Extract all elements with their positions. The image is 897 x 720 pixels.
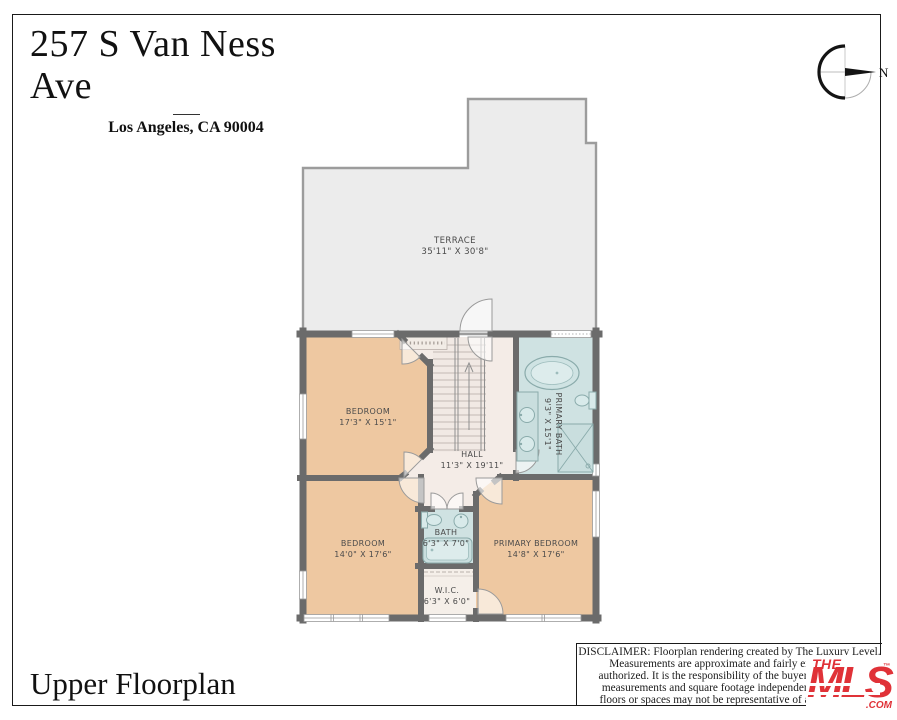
terrace-dims: 35'11" X 30'8" — [421, 247, 488, 257]
terrace-label: TERRACE — [433, 236, 476, 246]
toilet-icon — [575, 395, 589, 406]
themls-logo-com: .COM — [866, 700, 892, 711]
window-bottom-bedroom2 — [304, 615, 389, 622]
bathtub-drain — [556, 372, 559, 375]
logo-stripe — [808, 683, 880, 686]
compass-south-east-arc — [845, 72, 871, 98]
compass-north-label: N — [879, 65, 889, 80]
window-right-primary-bedroom — [593, 491, 600, 537]
themls-logo: THE MLS ™ .COM — [806, 655, 892, 711]
bedroom1-dims: 17'3" X 15'1" — [339, 418, 396, 427]
title-divider — [173, 114, 200, 115]
primary-bedroom-dims: 14'8" X 17'6" — [507, 550, 564, 559]
room-terrace — [303, 99, 596, 334]
wic-dims: 6'3" X 6'0" — [424, 597, 471, 606]
window-bottom-primary-bedroom — [506, 615, 581, 622]
terrace-floor — [303, 99, 596, 334]
bedroom1-label: BEDROOM — [346, 407, 390, 416]
faucet-dot — [520, 443, 522, 445]
window-top-bedroom1 — [352, 331, 394, 338]
primary-bath-label: PRIMARY BATH — [554, 392, 563, 455]
toilet-icon — [427, 515, 442, 526]
floorplan-drawing: TERRACE 35'11" X 30'8" BEDROOM 17'3" X 1… — [280, 90, 620, 640]
primary-bedroom-label: PRIMARY BEDROOM — [494, 539, 579, 548]
themls-logo-tm: ™ — [883, 663, 890, 670]
window-left-bedroom2 — [300, 571, 307, 599]
bathtub-drain — [431, 549, 434, 552]
faucet-dot — [520, 414, 522, 416]
bedroom2-label: BEDROOM — [341, 539, 385, 548]
room-bedroom-2 — [303, 478, 421, 618]
bath-label: BATH — [435, 528, 458, 537]
faucet-dot — [460, 516, 462, 518]
floorplan-page: 257 S Van Ness Ave Los Angeles, CA 90004… — [0, 0, 897, 720]
wic-label: W.I.C. — [435, 586, 460, 595]
hall-label: HALL — [461, 450, 483, 459]
window-left-bedroom1 — [300, 394, 307, 439]
bath-dims: 6'3" X 7'0" — [423, 539, 470, 548]
bathtub-inner — [531, 362, 573, 385]
window-right-primary-bath — [593, 464, 600, 476]
floor-label: Upper Floorplan — [30, 666, 236, 702]
primary-bath-dims: 9'3" X 15'1" — [543, 398, 552, 450]
window-bottom-wic — [429, 615, 466, 622]
compass-icon: N — [800, 30, 895, 115]
bedroom2-dims: 14'0" X 17'6" — [334, 550, 391, 559]
window-top-primary-bath — [551, 331, 591, 338]
hall-dims: 11'3" X 19'11" — [441, 461, 504, 470]
toilet-tank — [589, 392, 596, 409]
logo-stripe — [808, 692, 880, 695]
